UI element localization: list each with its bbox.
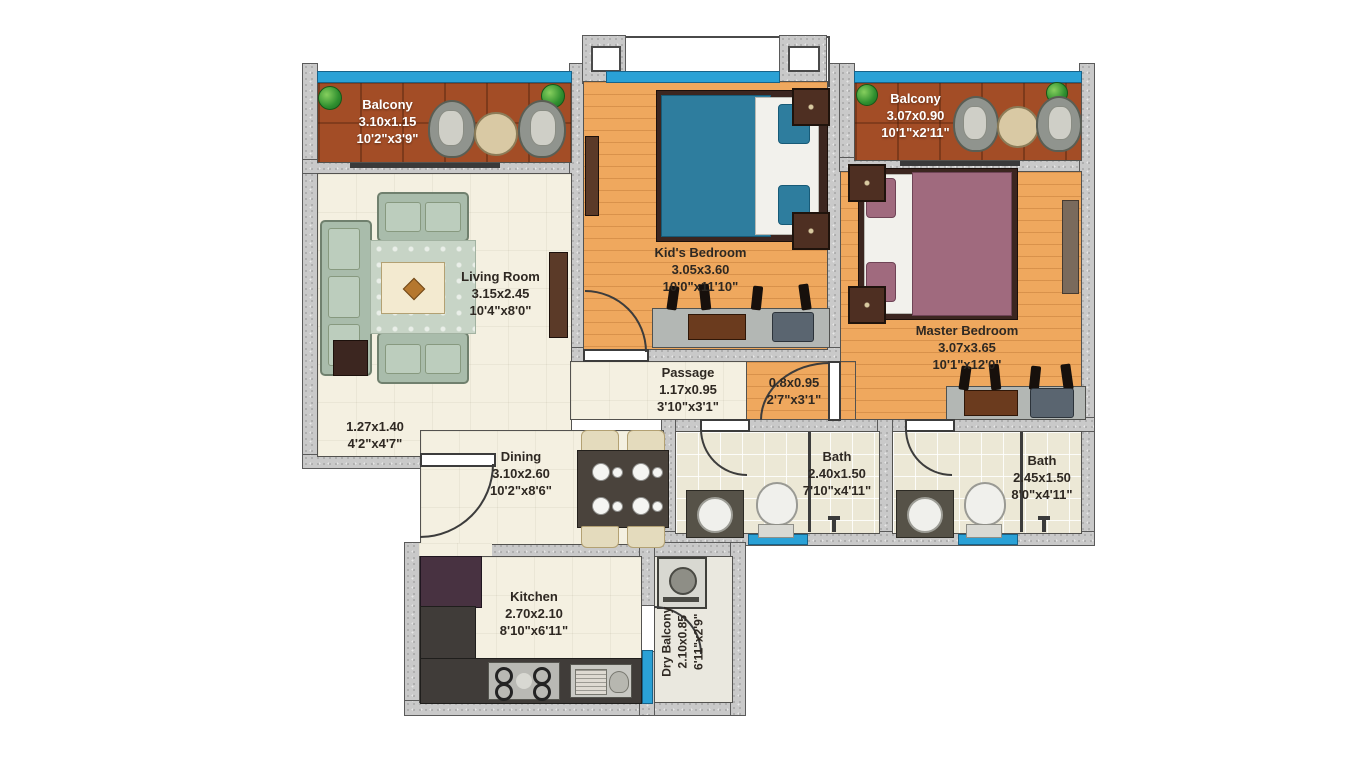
railing-balcony-left xyxy=(317,71,572,83)
room-dim-imperial: 2'7"x3'1" xyxy=(748,391,840,408)
room-name: Balcony xyxy=(858,90,973,107)
room-dim-metric: 1.17x0.95 xyxy=(638,381,738,398)
label-master-bedroom: Master Bedroom 3.07x3.65 10'1"x12'0" xyxy=(872,322,1062,373)
label-living-room: Living Room 3.15x2.45 10'4"x8'0" xyxy=(438,268,563,319)
wall-kitchen-left xyxy=(405,543,419,715)
side-table xyxy=(333,340,368,376)
wardrobe-runner xyxy=(964,390,1018,416)
balcony-chair xyxy=(518,100,566,158)
shower-head-icon xyxy=(1038,516,1050,520)
label-kitchen: Kitchen 2.70x2.10 8'10"x6'11" xyxy=(478,588,590,639)
room-dim-imperial: 10'0"x11'10" xyxy=(608,278,793,295)
shower-mixer-icon xyxy=(1042,518,1046,532)
room-dim-metric: 1.27x1.40 xyxy=(320,418,430,435)
room-dim-imperial: 8'10"x6'11" xyxy=(478,622,590,639)
tv-panel-master xyxy=(1062,200,1079,294)
sliding-door-sill-left xyxy=(350,163,500,168)
nightstand xyxy=(848,286,886,324)
room-name: Bath xyxy=(782,448,892,465)
room-dim-metric: 2.40x1.50 xyxy=(782,465,892,482)
label-passage: Passage 1.17x0.95 3'10"x3'1" xyxy=(638,364,738,415)
nightstand xyxy=(848,164,886,202)
room-name: Master Bedroom xyxy=(872,322,1062,339)
room-dim-metric: 2.45x1.50 xyxy=(990,469,1094,486)
room-name: Dining xyxy=(466,448,576,465)
master-bed-blanket xyxy=(912,172,1012,316)
room-dim-metric: 3.15x2.45 xyxy=(438,285,563,302)
sliding-door-sill-right xyxy=(900,161,1020,166)
label-dry-balcony: Dry Balcony 2.10x0.85 6'11"x2'9" xyxy=(659,587,706,697)
label-bath-2: Bath 2.45x1.50 8'0"x4'11" xyxy=(990,452,1094,503)
room-dim-metric: 3.07x3.65 xyxy=(872,339,1062,356)
dresser-bag xyxy=(772,312,814,342)
kitchen-sink xyxy=(570,664,632,698)
dining-chair xyxy=(627,430,665,452)
wall-dry-balcony-right xyxy=(731,543,745,715)
room-dim-imperial: 7'10"x4'11" xyxy=(782,482,892,499)
bay-pillar-left-inset xyxy=(591,46,621,72)
room-dim-imperial: 10'4"x8'0" xyxy=(438,302,563,319)
room-dim-imperial: 10'1"x2'11" xyxy=(858,124,973,141)
sofa-two-seater-top xyxy=(377,192,469,242)
balcony-table xyxy=(474,112,518,156)
nightstand xyxy=(792,88,830,126)
balcony-chair xyxy=(1036,96,1082,152)
room-dim-imperial: 10'2"x8'6" xyxy=(466,482,576,499)
label-balcony-right: Balcony 3.07x0.90 10'1"x2'11" xyxy=(858,90,973,141)
balcony-table xyxy=(997,106,1039,148)
wall-kitchen-dry-divider-a xyxy=(640,543,654,605)
room-dim-metric: 0.8x0.95 xyxy=(748,374,840,391)
window-bay xyxy=(606,71,780,83)
room-name: Balcony xyxy=(330,96,445,113)
dining-chair xyxy=(627,526,665,548)
room-dim-imperial: 10'2"x3'9" xyxy=(330,130,445,147)
wardrobe-bag xyxy=(1030,388,1074,418)
dresser-runner xyxy=(688,314,746,340)
room-dim-imperial: 4'2"x4'7" xyxy=(320,435,430,452)
dining-table xyxy=(577,450,669,528)
dining-chair xyxy=(581,526,619,548)
sofa-two-seater-bottom xyxy=(377,332,469,384)
nightstand xyxy=(792,212,830,250)
room-dim-imperial: 3'10"x3'1" xyxy=(638,398,738,415)
tv-panel-kids xyxy=(585,136,599,216)
room-name: Bath xyxy=(990,452,1094,469)
floor-entry-gap xyxy=(419,543,492,557)
room-name: Passage xyxy=(638,364,738,381)
railing-balcony-right xyxy=(854,71,1082,83)
room-dim-metric: 3.10x2.60 xyxy=(466,465,576,482)
room-dim-metric: 3.07x0.90 xyxy=(858,107,973,124)
room-name: Dry Balcony xyxy=(659,587,675,697)
room-dim-metric: 2.10x0.85 xyxy=(675,587,691,697)
dining-chair xyxy=(581,430,619,452)
refrigerator xyxy=(420,556,482,608)
room-dim-metric: 3.10x1.15 xyxy=(330,113,445,130)
stove xyxy=(488,662,560,700)
room-name: Kitchen xyxy=(478,588,590,605)
label-lobby: 0.8x0.95 2'7"x3'1" xyxy=(748,374,840,408)
room-name: Kid's Bedroom xyxy=(608,244,793,261)
label-dining: Dining 3.10x2.60 10'2"x8'6" xyxy=(466,448,576,499)
shower-head-icon xyxy=(828,516,840,520)
label-balcony-left: Balcony 3.10x1.15 10'2"x3'9" xyxy=(330,96,445,147)
room-dim-imperial: 8'0"x4'11" xyxy=(990,486,1094,503)
label-foyer: 1.27x1.40 4'2"x4'7" xyxy=(320,418,430,452)
room-dim-metric: 2.70x2.10 xyxy=(478,605,590,622)
label-bath-1: Bath 2.40x1.50 7'10"x4'11" xyxy=(782,448,892,499)
wall-balcony-right-left xyxy=(840,64,854,171)
room-dim-imperial: 6'11"x2'9" xyxy=(691,587,707,697)
window-dry-balcony xyxy=(642,650,653,704)
label-kids-bedroom: Kid's Bedroom 3.05x3.60 10'0"x11'10" xyxy=(608,244,793,295)
room-dim-imperial: 10'1"x12'0" xyxy=(872,356,1062,373)
bay-pillar-right-inset xyxy=(788,46,820,72)
washbasin xyxy=(686,490,744,538)
floor-plan-canvas: Balcony 3.10x1.15 10'2"x3'9" Balcony 3.0… xyxy=(0,0,1366,768)
room-dim-metric: 3.05x3.60 xyxy=(608,261,793,278)
washbasin xyxy=(896,490,954,538)
wall-kids-bottom-a xyxy=(570,348,584,361)
coffee-table xyxy=(381,262,445,314)
shower-mixer-icon xyxy=(832,518,836,532)
room-name: Living Room xyxy=(438,268,563,285)
wall-outer-left xyxy=(303,64,317,468)
